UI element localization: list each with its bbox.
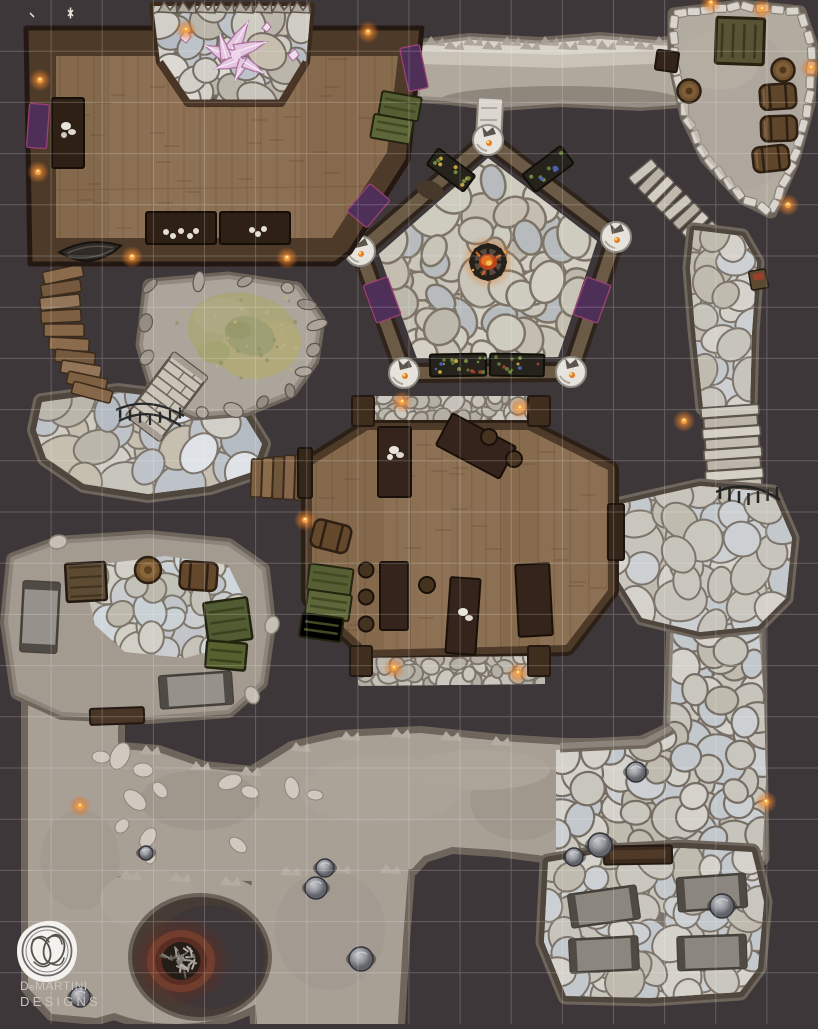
svg-text:DeMARTINI: DeMARTINI xyxy=(20,979,88,993)
svg-text:DESIGNS: DESIGNS xyxy=(20,994,101,1009)
